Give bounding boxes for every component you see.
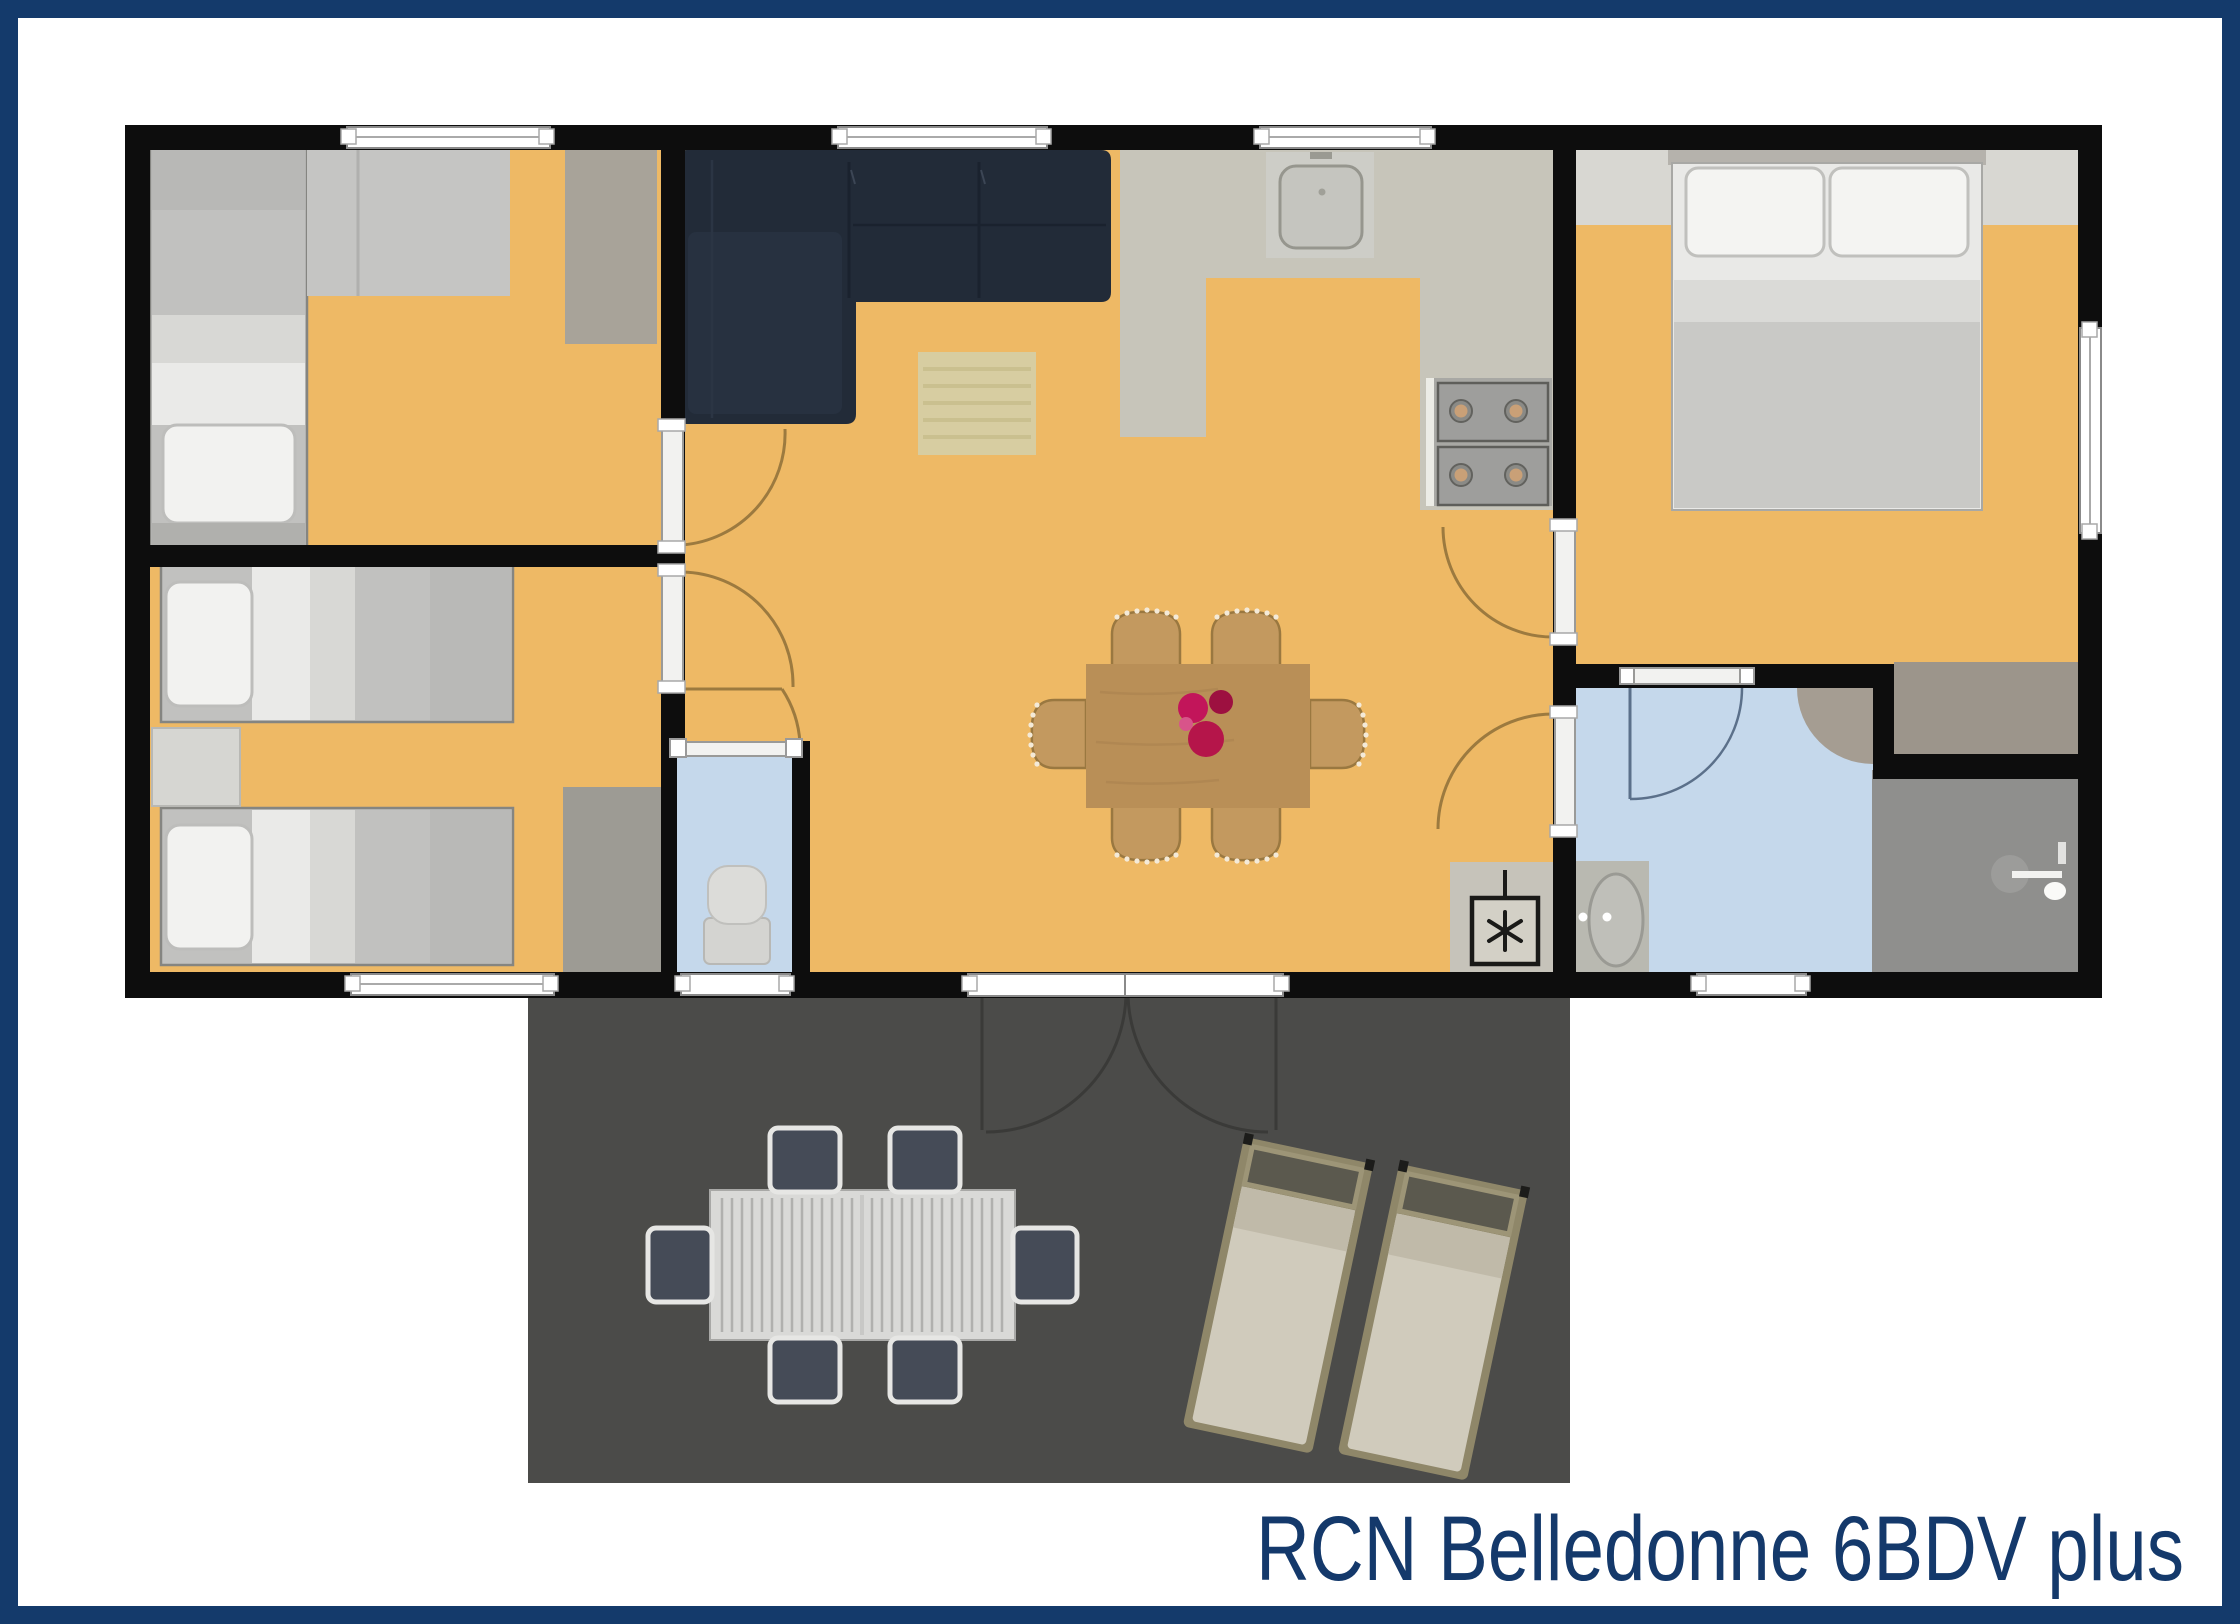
svg-text:RCN Belledonne 6BDV plus: RCN Belledonne 6BDV plus	[1256, 1498, 2184, 1600]
